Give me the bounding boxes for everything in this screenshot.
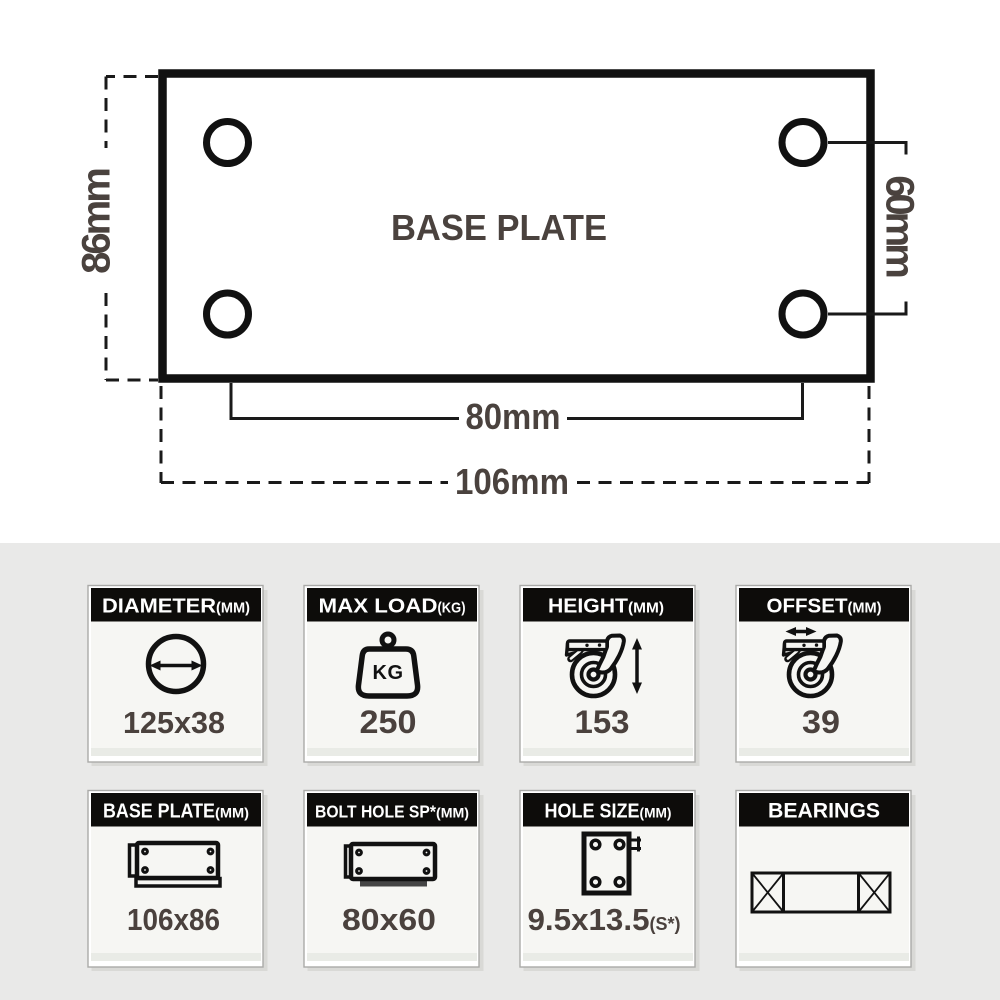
svg-text:80mm: 80mm: [466, 396, 561, 437]
svg-text:125x38: 125x38: [123, 705, 225, 740]
svg-text:80x60: 80x60: [342, 902, 436, 937]
svg-text:250: 250: [360, 704, 417, 740]
svg-text:39: 39: [802, 704, 840, 740]
svg-text:BEARINGS: BEARINGS: [768, 800, 880, 823]
svg-text:HOLE SIZE(MM): HOLE SIZE(MM): [545, 801, 672, 823]
svg-text:KG: KG: [373, 662, 404, 684]
svg-text:60mm: 60mm: [877, 175, 921, 277]
svg-text:153: 153: [575, 704, 630, 740]
svg-text:106x86: 106x86: [127, 902, 220, 937]
svg-text:BASE PLATE(MM): BASE PLATE(MM): [103, 801, 249, 823]
svg-text:106mm: 106mm: [455, 461, 569, 502]
svg-text:86mm: 86mm: [75, 169, 119, 274]
svg-text:BASE PLATE: BASE PLATE: [391, 207, 607, 248]
